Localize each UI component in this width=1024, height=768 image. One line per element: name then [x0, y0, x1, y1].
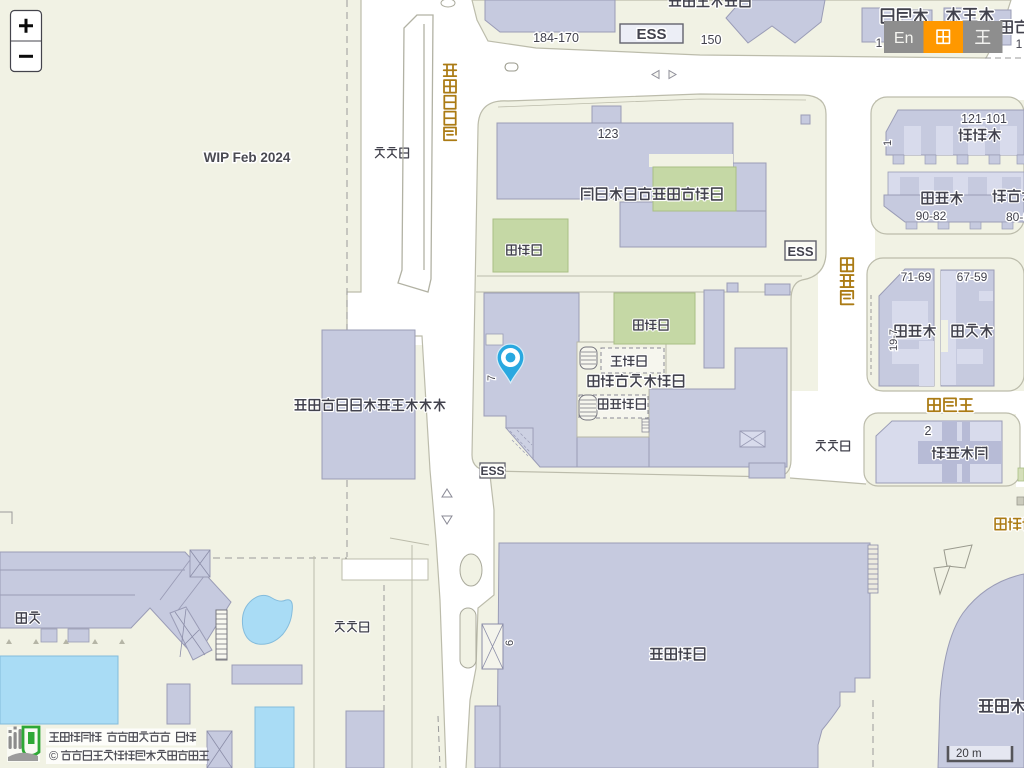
svg-text:184-170: 184-170: [533, 31, 579, 45]
svg-text:80-6: 80-6: [1006, 210, 1024, 224]
svg-text:©: ©: [49, 749, 59, 763]
svg-text:150: 150: [701, 33, 722, 47]
svg-text:2: 2: [925, 424, 932, 438]
svg-text:ESS: ESS: [480, 464, 504, 478]
svg-text:1: 1: [1016, 37, 1023, 51]
svg-text:En: En: [894, 30, 914, 47]
svg-text:ESS: ESS: [787, 244, 813, 259]
svg-text:1: 1: [876, 36, 883, 50]
svg-text:71-69: 71-69: [901, 270, 932, 284]
svg-text:7: 7: [486, 375, 498, 381]
svg-text:ESS: ESS: [636, 26, 666, 43]
svg-text:1: 1: [882, 140, 894, 146]
svg-text:19-7: 19-7: [888, 329, 900, 351]
svg-text:121-101: 121-101: [961, 112, 1007, 126]
svg-text:20 m: 20 m: [956, 748, 982, 760]
svg-text:6: 6: [504, 640, 516, 646]
svg-text:123: 123: [598, 127, 619, 141]
svg-text:67-59: 67-59: [957, 270, 988, 284]
svg-text:WIP Feb 2024: WIP Feb 2024: [204, 150, 291, 165]
svg-text:90-82: 90-82: [916, 209, 947, 223]
